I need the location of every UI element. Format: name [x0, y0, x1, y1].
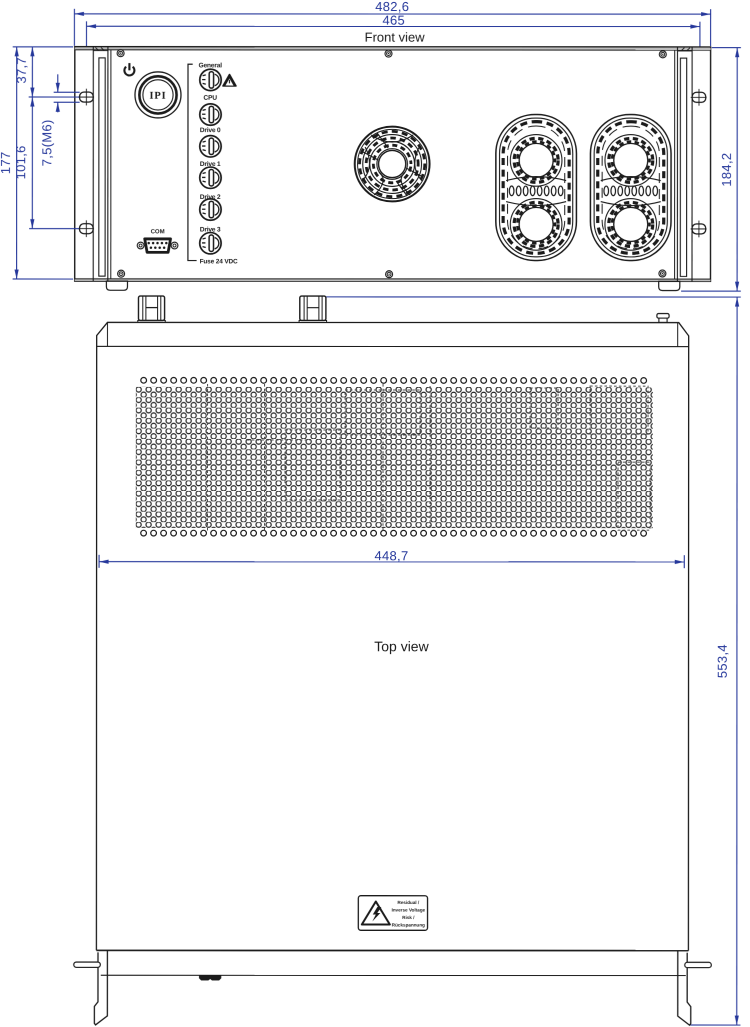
svg-text:448,7: 448,7: [374, 548, 408, 563]
svg-text:177: 177: [0, 152, 13, 175]
svg-text:Inverse Voltage: Inverse Voltage: [391, 908, 425, 913]
svg-text:Front view: Front view: [365, 30, 426, 45]
svg-text:101,6: 101,6: [13, 145, 28, 179]
svg-text:Rückspannung: Rückspannung: [392, 923, 425, 928]
svg-text:CPU: CPU: [204, 95, 218, 102]
svg-text:Residual /: Residual /: [397, 900, 419, 905]
svg-text:Drive 0: Drive 0: [200, 127, 221, 134]
svg-text:COM: COM: [151, 228, 165, 235]
svg-text:184,2: 184,2: [719, 153, 734, 187]
svg-text:IPI: IPI: [149, 91, 166, 102]
svg-text:465: 465: [382, 13, 405, 28]
svg-text:7,5(M6): 7,5(M6): [39, 119, 54, 166]
svg-text:Fuse 24 VDC: Fuse 24 VDC: [200, 258, 238, 265]
svg-text:Top view: Top view: [374, 638, 429, 654]
svg-text:Risk /: Risk /: [402, 915, 415, 920]
svg-text:37,7: 37,7: [14, 57, 29, 84]
svg-text:General: General: [199, 62, 223, 69]
svg-text:553,4: 553,4: [715, 644, 730, 678]
